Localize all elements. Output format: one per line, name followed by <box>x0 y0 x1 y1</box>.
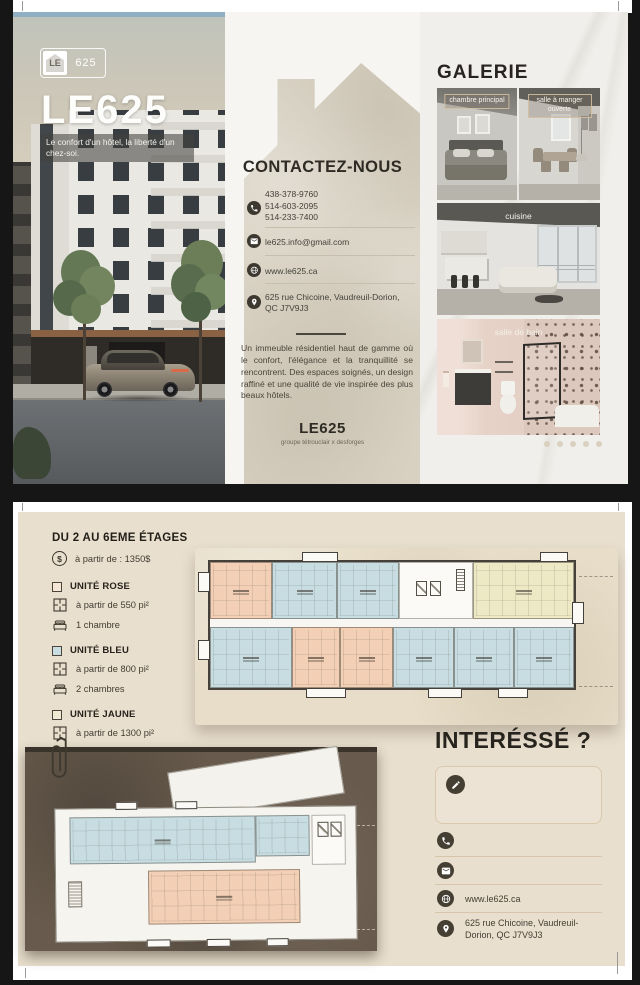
plan-unit-bleu <box>272 562 337 619</box>
photo-label: cuisine <box>437 211 600 221</box>
brochure-back-page: DU 2 AU 6EME ÉTAGES $ à partir de : 1350… <box>13 502 632 980</box>
elevator <box>317 822 328 837</box>
sky <box>13 12 225 17</box>
plan-unit-bleu <box>69 815 255 864</box>
plan-bump <box>147 939 171 947</box>
address-text[interactable]: 625 rue Chicoine, Vaudreuil-Dorion, QC J… <box>465 918 600 941</box>
plan-bump <box>207 939 231 947</box>
unit-legend-rose: UNITÉ ROSE à partir de 550 pi² 1 chambre <box>52 581 207 633</box>
plan-bump <box>498 688 528 698</box>
phone-number: 438-378-9760 <box>265 189 318 201</box>
property-line <box>579 686 613 687</box>
unit-rooms: 1 chambre <box>76 620 120 630</box>
unit-rooms: 2 chambres <box>76 684 125 694</box>
phone-number: 514-233-7400 <box>265 212 318 224</box>
footer-brand: LE625 <box>225 420 420 437</box>
interested-heading: INTERÉSSÉ ? <box>435 727 591 754</box>
unit-name: UNITÉ JAUNE <box>70 709 136 720</box>
cover-title: LE625 <box>41 88 169 133</box>
unit-size: à partir de 1300 pi² <box>76 728 154 738</box>
plan-bump <box>572 602 584 624</box>
dollar-icon: $ <box>52 551 67 566</box>
phone-icon <box>247 201 261 215</box>
unit-size: à partir de 550 pi² <box>76 600 149 610</box>
bed-icon <box>52 681 68 697</box>
plan-bump <box>115 802 137 810</box>
section-rule <box>296 333 346 335</box>
globe-icon <box>247 263 261 277</box>
plan-unit-bleu <box>454 627 514 688</box>
crop-mark <box>22 503 23 511</box>
photo-dining: salle à manger ouverte <box>519 88 600 200</box>
color-swatch-jaune <box>52 710 62 720</box>
divider <box>265 283 415 284</box>
bed-icon <box>52 617 68 633</box>
paperclip-icon <box>49 733 75 789</box>
pin-icon <box>247 295 261 309</box>
divider <box>265 255 415 256</box>
stairwell <box>68 881 82 907</box>
tree <box>53 250 117 400</box>
plan-bump <box>428 688 462 698</box>
plan-unit-rose <box>210 562 272 619</box>
pagination-dots <box>544 441 602 447</box>
unit-legend-bleu: UNITÉ BLEU à partir de 800 pi² 2 chambre… <box>52 645 207 697</box>
ground-plan-building <box>54 805 357 942</box>
crop-mark <box>618 1 619 11</box>
crop-mark <box>617 952 618 974</box>
floorplan-icon <box>52 597 68 613</box>
cover-tagline: Le confort d'un hôtel, la liberté d'un c… <box>41 134 194 162</box>
plan-unit-bleu <box>337 562 399 619</box>
floor-plan-upper <box>195 548 618 725</box>
stairwell <box>456 569 465 591</box>
plan-bump <box>540 552 568 562</box>
plan-unit-bleu <box>210 627 292 688</box>
plan-unit-rose <box>340 627 393 688</box>
unit-name: UNITÉ BLEU <box>70 645 129 656</box>
photo-kitchen: cuisine <box>437 203 600 315</box>
dot <box>557 441 563 447</box>
price-text: à partir de : 1350$ <box>75 554 150 564</box>
property-line <box>579 576 613 577</box>
phone-numbers[interactable]: 438-378-9760 514-603-2095 514-233-7400 <box>265 189 318 224</box>
divider <box>435 856 602 857</box>
logo-number-text: 625 <box>67 57 105 69</box>
plan-building <box>208 560 576 690</box>
plan-bump <box>198 572 210 592</box>
plan-unit-bleu <box>514 627 574 688</box>
plan-bump <box>267 938 289 946</box>
plan-bump <box>302 552 338 562</box>
email-text[interactable]: le625.info@gmail.com <box>265 237 349 247</box>
elevator <box>416 581 427 596</box>
plan-unit-rose <box>148 869 301 925</box>
brand-logo: LE 625 <box>40 48 106 78</box>
dot <box>570 441 576 447</box>
website-text[interactable]: www.le625.ca <box>465 894 521 904</box>
unit-size: à partir de 800 pi² <box>76 664 149 674</box>
divider <box>435 912 602 913</box>
crop-mark <box>22 1 23 11</box>
website-text[interactable]: www.le625.ca <box>265 266 317 276</box>
address-text[interactable]: 625 rue Chicoine, Vaudreuil-Dorion, QC J… <box>265 292 407 314</box>
plan-unit-bleu <box>393 627 454 688</box>
pin-icon <box>437 920 454 937</box>
floors-heading: DU 2 AU 6EME ÉTAGES <box>52 532 207 544</box>
plan-bump <box>198 640 210 660</box>
phone-icon <box>437 832 454 849</box>
neighbor-building <box>13 162 31 386</box>
logo-house-icon: LE <box>43 51 67 75</box>
photo-bedroom: chambre principal <box>437 88 517 200</box>
dot <box>596 441 602 447</box>
plan-unit-jaune <box>473 562 574 619</box>
contact-panel: CONTACTEZ-NOUS 438-378-9760 514-603-2095… <box>225 12 420 484</box>
footer-subbrand: groupe tétrouclair x desforges <box>225 439 420 446</box>
gallery-heading: GALERIE <box>437 62 528 84</box>
contact-heading: CONTACTEZ-NOUS <box>225 158 420 177</box>
photo-label: chambre principal <box>444 94 509 109</box>
plan-bump <box>306 688 346 698</box>
color-swatch-rose <box>52 582 62 592</box>
plan-bump <box>175 801 197 809</box>
logo-le-text: LE <box>49 58 61 68</box>
plan-unit-bleu <box>255 815 309 857</box>
pencil-icon <box>446 775 465 794</box>
plan-core <box>311 815 346 865</box>
plan-core <box>399 562 473 619</box>
photo-label: salle de bain <box>437 327 600 337</box>
dot <box>583 441 589 447</box>
unit-legend: DU 2 AU 6EME ÉTAGES $ à partir de : 1350… <box>52 532 207 773</box>
photo-label: salle à manger ouverte <box>528 94 592 118</box>
elevator <box>330 822 341 837</box>
property-line <box>357 825 375 826</box>
divider <box>265 227 415 228</box>
divider <box>435 884 602 885</box>
elevator <box>430 581 441 596</box>
property-line <box>357 929 375 930</box>
mail-icon <box>437 862 454 879</box>
phone-number: 514-603-2095 <box>265 201 318 213</box>
globe-icon <box>437 890 454 907</box>
brochure-front-page: LE 625 LE625 Le confort d'un hôtel, la l… <box>13 12 628 484</box>
color-swatch-bleu <box>52 646 62 656</box>
back-page-content: DU 2 AU 6EME ÉTAGES $ à partir de : 1350… <box>18 512 625 966</box>
floor-plan-ground-photo <box>25 747 377 951</box>
crop-mark <box>618 503 619 511</box>
crop-mark <box>25 968 26 978</box>
unit-name: UNITÉ ROSE <box>70 581 130 592</box>
photo-bathroom: salle de bain <box>437 319 600 435</box>
plan-unit-rose <box>292 627 340 688</box>
mail-icon <box>247 234 261 248</box>
floorplan-icon <box>52 661 68 677</box>
dot <box>544 441 550 447</box>
about-text: Un immeuble résidentiel haut de gamme où… <box>241 343 413 402</box>
cover-panel: LE 625 LE625 Le confort d'un hôtel, la l… <box>13 12 225 484</box>
note-box[interactable] <box>435 766 602 824</box>
gallery-panel: GALERIE chambre principal <box>420 12 628 484</box>
tree <box>171 240 225 402</box>
